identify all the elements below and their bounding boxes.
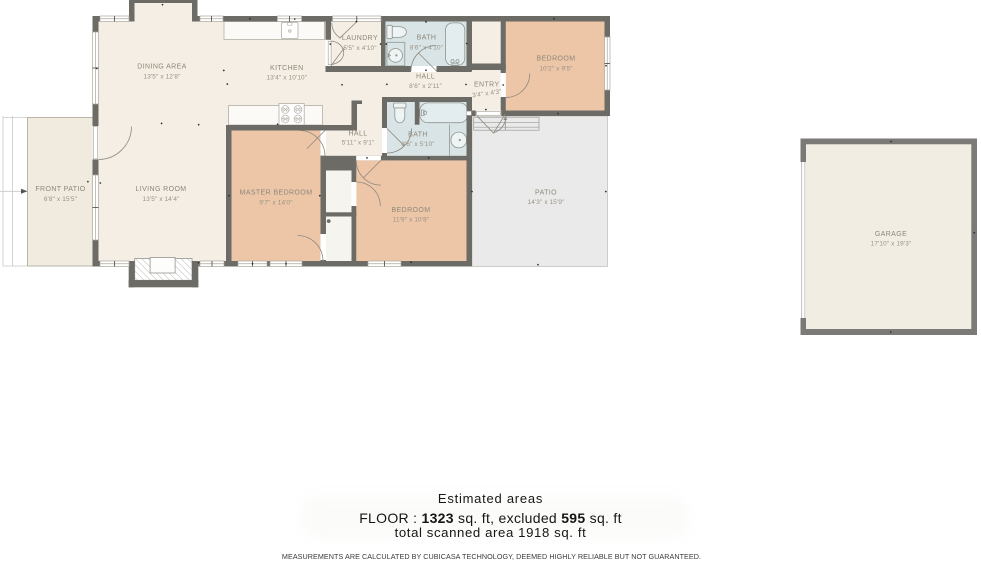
svg-text:9'7" x 14'0": 9'7" x 14'0" bbox=[259, 200, 292, 207]
svg-text:DINING AREA: DINING AREA bbox=[137, 64, 187, 71]
svg-text:GARAGE: GARAGE bbox=[875, 231, 907, 238]
svg-text:BEDROOM: BEDROOM bbox=[392, 207, 431, 214]
svg-text:FRONT PATIO: FRONT PATIO bbox=[35, 186, 85, 193]
svg-text:17'10" x 19'3": 17'10" x 19'3" bbox=[871, 241, 912, 248]
svg-text:LIVING ROOM: LIVING ROOM bbox=[135, 186, 186, 193]
svg-text:LAUNDRY: LAUNDRY bbox=[342, 35, 378, 42]
svg-text:13'5" x 14'4": 13'5" x 14'4" bbox=[143, 196, 180, 203]
svg-text:8'6" x 4'10": 8'6" x 4'10" bbox=[410, 44, 443, 51]
svg-text:BEDROOM: BEDROOM bbox=[537, 56, 576, 63]
svg-text:8'6" x 2'11": 8'6" x 2'11" bbox=[409, 83, 442, 90]
svg-text:10'2" x 9'5": 10'2" x 9'5" bbox=[539, 66, 572, 73]
svg-text:13'4" x 10'10": 13'4" x 10'10" bbox=[266, 75, 307, 82]
svg-text:HALL: HALL bbox=[348, 131, 367, 138]
svg-text:BATH: BATH bbox=[408, 132, 428, 139]
svg-text:MASTER BEDROOM: MASTER BEDROOM bbox=[240, 190, 313, 197]
svg-text:PATIO: PATIO bbox=[535, 190, 557, 197]
svg-text:ENTRY: ENTRY bbox=[474, 82, 500, 89]
svg-text:13'5" x 12'8": 13'5" x 12'8" bbox=[144, 73, 181, 80]
svg-text:11'9" x 10'8": 11'9" x 10'8" bbox=[393, 217, 430, 224]
svg-text:KITCHEN: KITCHEN bbox=[270, 65, 304, 72]
svg-text:8'6" x 5'10": 8'6" x 5'10" bbox=[401, 141, 434, 148]
svg-text:14'3" x 15'9": 14'3" x 15'9" bbox=[528, 199, 565, 206]
svg-text:5'11" x 9'1": 5'11" x 9'1" bbox=[342, 140, 375, 147]
svg-text:BATH: BATH bbox=[417, 35, 437, 42]
svg-text:6'8" x 15'5": 6'8" x 15'5" bbox=[44, 196, 77, 203]
svg-text:HALL: HALL bbox=[416, 74, 435, 81]
svg-text:5'5" x 4'10": 5'5" x 4'10" bbox=[343, 45, 376, 52]
